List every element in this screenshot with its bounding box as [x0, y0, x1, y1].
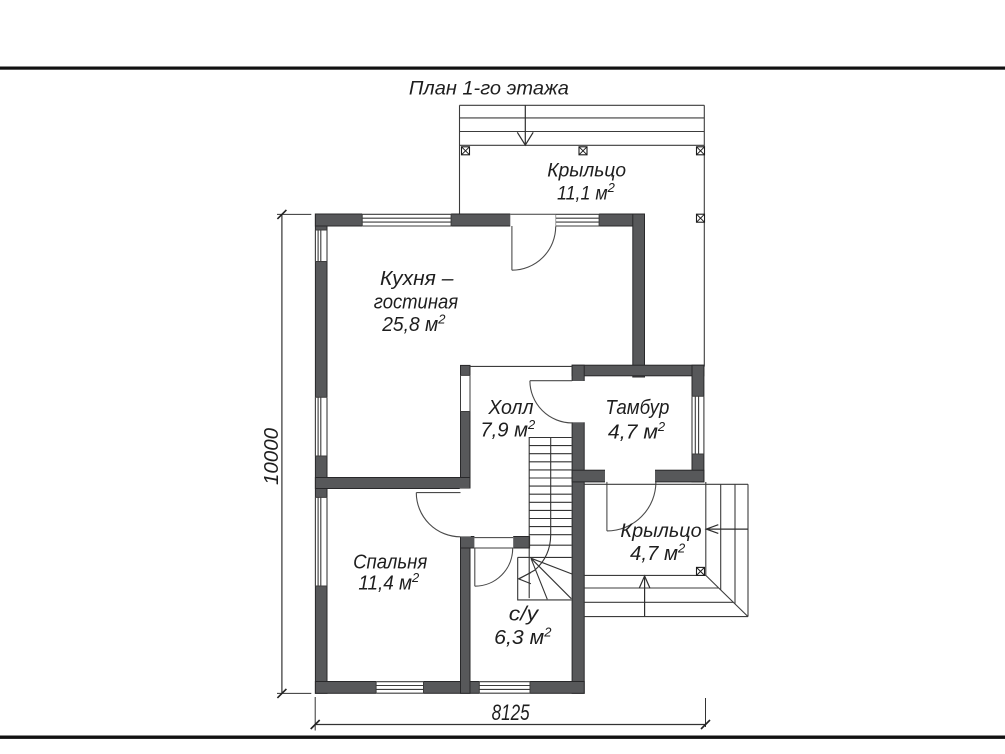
svg-text:План 1-го этажа: План 1-го этажа [409, 79, 569, 100]
svg-text:11,4 м2: 11,4 м2 [358, 570, 420, 595]
svg-text:25,8 м2: 25,8 м2 [381, 311, 446, 336]
svg-text:4,7 м2: 4,7 м2 [630, 540, 686, 565]
svg-text:Тамбур: Тамбур [605, 397, 669, 419]
svg-text:11,1 м2: 11,1 м2 [557, 180, 616, 205]
svg-text:8125: 8125 [492, 700, 531, 725]
svg-text:6,3 м2: 6,3 м2 [494, 625, 552, 650]
svg-text:Кухня –: Кухня – [380, 268, 454, 290]
svg-text:гостиная: гостиная [374, 292, 459, 314]
svg-text:4,7 м2: 4,7 м2 [608, 419, 666, 444]
svg-text:10000: 10000 [261, 428, 283, 485]
svg-text:7,9 м2: 7,9 м2 [480, 417, 536, 442]
svg-text:с/у: с/у [509, 604, 539, 626]
svg-text:Холл: Холл [487, 397, 533, 419]
svg-text:Крыльцо: Крыльцо [547, 161, 626, 182]
svg-text:Крыльцо: Крыльцо [620, 521, 701, 542]
